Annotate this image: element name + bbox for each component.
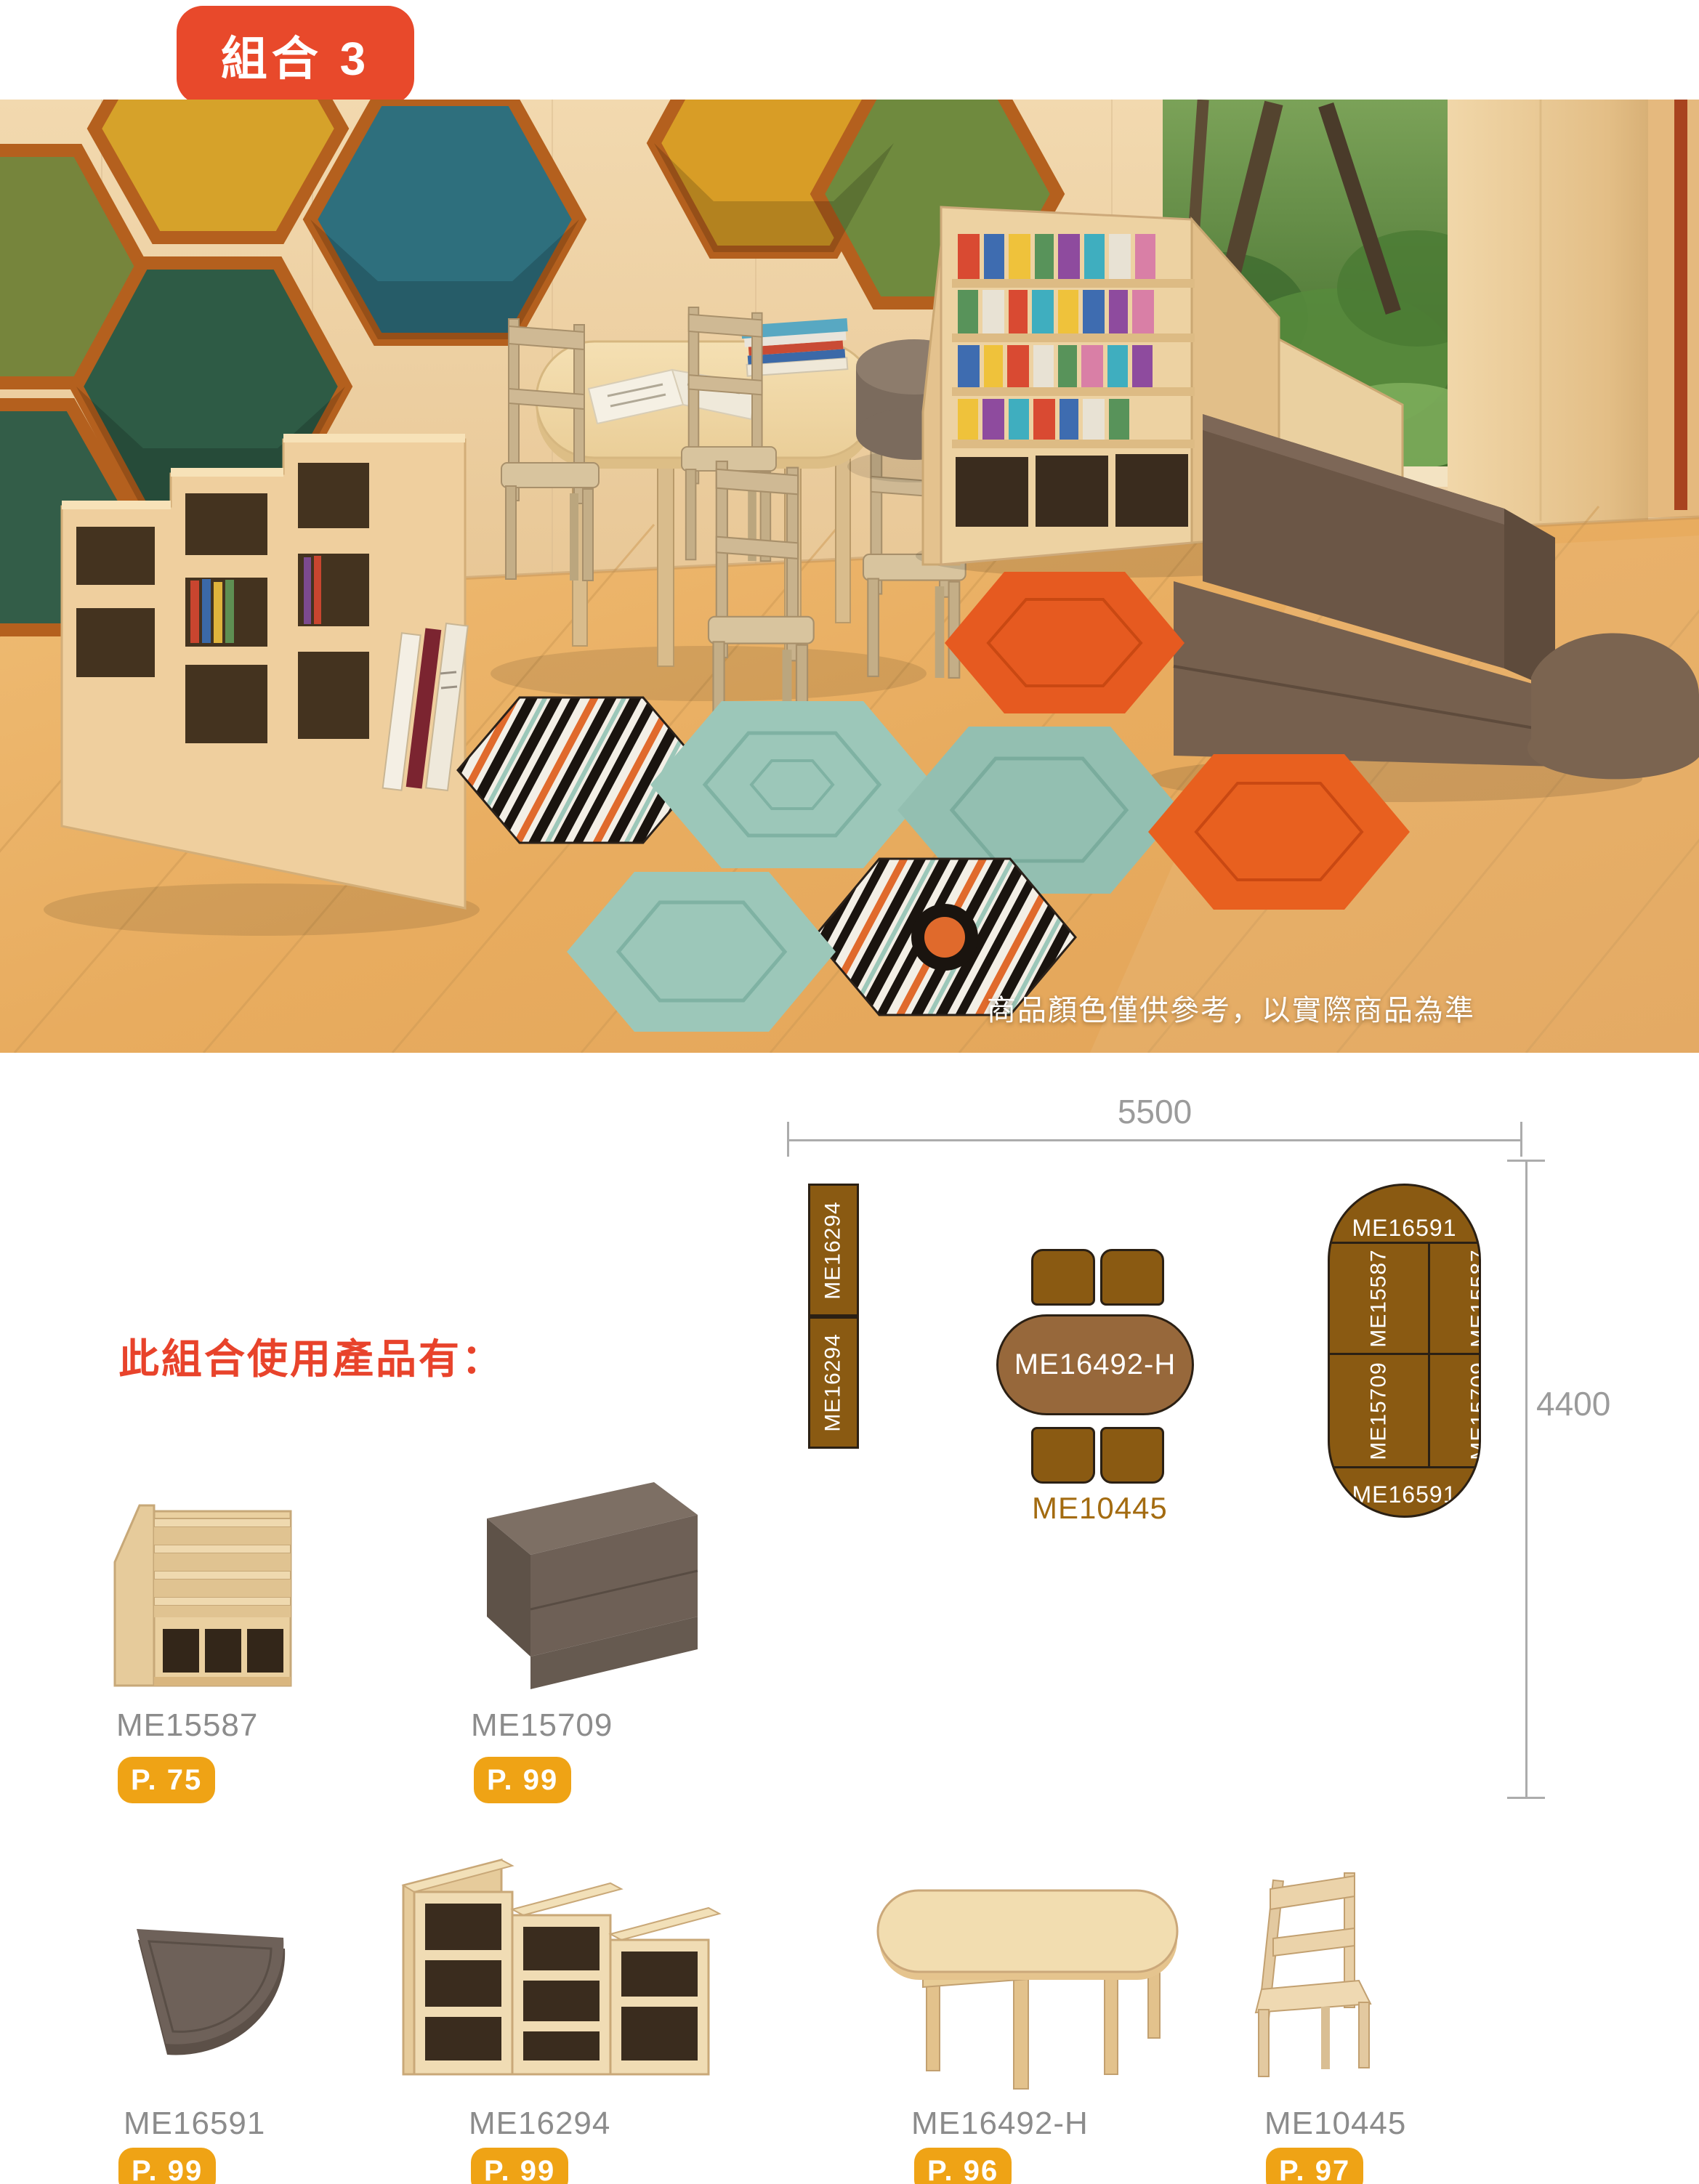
wood-pillar [1448, 100, 1648, 525]
plan-sofa-capsule: ME16591 ME15587 ME15587 ME15709 ME15709 … [1328, 1184, 1481, 1518]
plan-chair-4 [1100, 1427, 1164, 1484]
catalog-page: 組合 3 [0, 0, 1699, 2184]
plan-capsule-bottom-label: ME16591 [1352, 1481, 1457, 1508]
plan-capsule-cell-1: ME15587 [1330, 1244, 1430, 1355]
page-badge-me15587: P. 75 [118, 1757, 215, 1803]
dim-tick-right [1520, 1122, 1522, 1157]
product-code-me15709: ME15709 [471, 1707, 613, 1744]
page-badge-me16294: P. 99 [471, 2148, 568, 2184]
plan-shelf-2-label: ME16294 [821, 1333, 846, 1431]
product-image-me16294 [385, 1845, 748, 2085]
plan-shelf-1: ME16294 [808, 1184, 859, 1317]
product-code-me15587: ME15587 [116, 1707, 258, 1744]
plan-capsule-top-label: ME16591 [1352, 1215, 1457, 1242]
dim-line-top [787, 1139, 1522, 1141]
plan-chair-2 [1100, 1249, 1164, 1306]
plan-chair-3 [1031, 1427, 1095, 1484]
plan-shelf-1-label: ME16294 [821, 1201, 846, 1299]
sofa-round-end [1528, 633, 1699, 779]
page-badge-me15709: P. 99 [474, 1757, 571, 1803]
product-code-me16294: ME16294 [469, 2106, 610, 2142]
plan-chairs-label: ME10445 [1032, 1491, 1164, 1526]
dim-tick-bottom [1507, 1797, 1545, 1799]
plan-capsule-bottom: ME16591 [1330, 1468, 1479, 1518]
plan-capsule-cell-1-label: ME15587 [1367, 1249, 1392, 1347]
plan-chair-1 [1031, 1249, 1095, 1306]
dim-line-right [1525, 1160, 1528, 1798]
plan-table-label: ME16492-H [1014, 1348, 1176, 1381]
combo-badge: 組合 3 [177, 6, 414, 105]
plan-capsule-cell-3-label: ME15709 [1367, 1362, 1392, 1460]
plan-capsule-cell-4: ME15709 [1430, 1355, 1481, 1466]
combo-badge-label: 組合 3 [221, 22, 370, 89]
page-badge-me16591: P. 99 [118, 2148, 216, 2184]
plan-capsule-cell-3: ME15709 [1330, 1355, 1430, 1466]
display-cubbies [956, 454, 1188, 527]
product-image-me16492h [865, 1874, 1192, 2092]
room-scene [0, 100, 1699, 1053]
product-image-me10445 [1235, 1867, 1403, 2085]
plan-capsule-grid: ME15587 ME15587 ME15709 ME15709 [1330, 1242, 1479, 1468]
plan-table: ME16492-H [996, 1314, 1194, 1415]
plan-shelf-2: ME16294 [808, 1317, 859, 1449]
right-wall-strip [1648, 100, 1699, 517]
product-image-me15587 [102, 1475, 320, 1693]
plan-capsule-cell-4-label: ME15709 [1467, 1362, 1481, 1460]
photo-disclaimer-caption: 商品顏色僅供參考，以實際商品為準 [987, 987, 1475, 1029]
product-image-me16591 [94, 1889, 327, 2063]
product-code-me16492h: ME16492-H [911, 2106, 1089, 2142]
plan-capsule-cell-2: ME15587 [1430, 1244, 1481, 1355]
product-code-me16591: ME16591 [124, 2106, 265, 2142]
page-badge-me10445: P. 97 [1266, 2148, 1363, 2184]
plan-width-dimension: 5500 [787, 1092, 1522, 1131]
wall-accent-stripe [1674, 100, 1687, 510]
plan-height-dimension: 4400 [1536, 1384, 1610, 1423]
product-code-me10445: ME10445 [1264, 2106, 1406, 2142]
plan-capsule-cell-2-label: ME15587 [1467, 1249, 1481, 1347]
plan-capsule-top: ME16591 [1330, 1186, 1479, 1242]
room-photo: 商品顏色僅供參考，以實際商品為準 [0, 100, 1699, 1053]
section-heading: 此組合使用產品有： [118, 1327, 504, 1386]
product-image-me15709 [436, 1475, 727, 1693]
page-badge-me16492h: P. 96 [914, 2148, 1012, 2184]
dim-tick-left [787, 1122, 789, 1157]
dim-tick-top [1507, 1160, 1545, 1162]
